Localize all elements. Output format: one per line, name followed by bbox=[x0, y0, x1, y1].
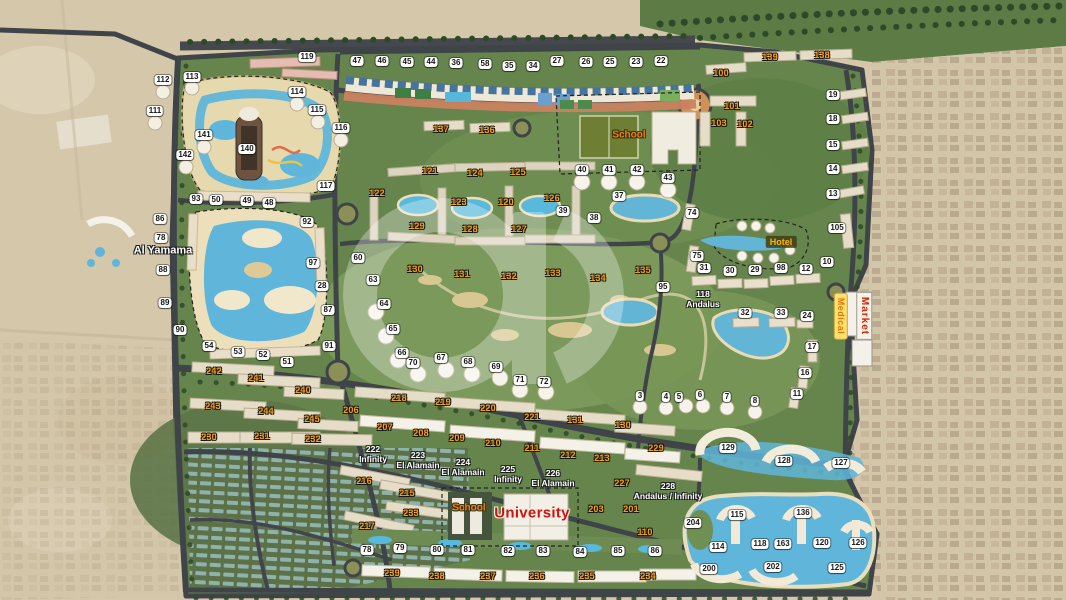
plot-badge-white: 126 bbox=[849, 538, 866, 548]
plot-badge-white: 141 bbox=[195, 130, 212, 140]
plot-badge-orange: 208 bbox=[413, 428, 429, 438]
plot-badge-orange: 206 bbox=[343, 405, 359, 415]
plot-badge-orange: 203 bbox=[588, 504, 604, 514]
plot-badge-white: 51 bbox=[281, 357, 294, 367]
plot-badge-white: 32 bbox=[739, 308, 752, 318]
plot-badge-white: 6 bbox=[696, 390, 704, 400]
plot-badge-orange: 131 bbox=[567, 415, 583, 425]
plot-badge-white: 81 bbox=[462, 545, 475, 555]
plot-badge-orange: 235 bbox=[579, 571, 595, 581]
plot-badge-white: 22 bbox=[655, 56, 668, 66]
plot-badge-white: 31 bbox=[698, 263, 711, 273]
plot-badge-white: 47 bbox=[351, 56, 364, 66]
plot-badge-white: 14 bbox=[827, 164, 840, 174]
plot-badge-white: 75 bbox=[691, 251, 704, 261]
plot-badge-white: 117 bbox=[318, 181, 335, 191]
plot-badge-white: 93 bbox=[190, 194, 203, 204]
plot-badge-orange: 239 bbox=[384, 568, 400, 578]
plot-badge-orange: 129 bbox=[409, 221, 425, 231]
zone-label: 223 El Alamain bbox=[396, 451, 439, 471]
zone-label: Al Yamama bbox=[134, 245, 193, 258]
plot-badge-orange: 216 bbox=[356, 476, 372, 486]
plot-badge-orange: 122 bbox=[369, 188, 385, 198]
plot-badge-white: 24 bbox=[801, 311, 814, 321]
plot-badge-white: 23 bbox=[630, 57, 643, 67]
plot-badge-orange: 124 bbox=[467, 168, 483, 178]
plot-badge-orange: 130 bbox=[407, 264, 423, 274]
plot-badge-white: 70 bbox=[407, 358, 420, 368]
plot-badge-orange: 137 bbox=[433, 124, 449, 134]
plot-badge-white: 115 bbox=[309, 105, 326, 115]
plot-badge-white: 86 bbox=[649, 546, 662, 556]
plot-badge-white: 118 bbox=[752, 539, 769, 549]
plot-badge-orange: 217 bbox=[359, 521, 375, 531]
zone-label: School bbox=[612, 129, 645, 141]
plot-badge-white: 204 bbox=[684, 518, 701, 528]
plot-badge-white: 39 bbox=[557, 206, 570, 216]
plot-badge-orange: 230 bbox=[201, 432, 217, 442]
plot-badge-white: 11 bbox=[791, 389, 803, 399]
plot-badge-white: 140 bbox=[238, 144, 255, 154]
plot-badge-white: 120 bbox=[813, 538, 830, 548]
plot-badge-orange: 123 bbox=[451, 197, 467, 207]
plot-badge-white: 136 bbox=[794, 508, 811, 518]
plot-badge-white: 91 bbox=[323, 341, 336, 351]
plot-badge-orange: 231 bbox=[254, 431, 270, 441]
plot-badge-white: 25 bbox=[604, 57, 617, 67]
plot-badge-white: 90 bbox=[174, 325, 187, 335]
plot-badge-orange: 242 bbox=[206, 366, 222, 376]
plot-badge-white: 16 bbox=[799, 368, 812, 378]
plot-badge-white: 115 bbox=[729, 510, 746, 520]
plot-badge-orange: 103 bbox=[711, 118, 727, 128]
plot-badge-white: 64 bbox=[378, 299, 391, 309]
zone-label: 222 Infinity bbox=[359, 445, 387, 465]
plot-badge-orange: 131 bbox=[454, 269, 470, 279]
plot-badge-white: 97 bbox=[307, 258, 320, 268]
plot-badge-white: 163 bbox=[774, 539, 791, 549]
plot-badge-white: 82 bbox=[502, 546, 515, 556]
plot-badge-orange: 233 bbox=[403, 508, 419, 518]
plot-badge-orange: 218 bbox=[391, 393, 407, 403]
plot-badge-white: 27 bbox=[551, 56, 564, 66]
plot-badge-white: 38 bbox=[588, 213, 601, 223]
plot-badge-white: 10 bbox=[821, 257, 834, 267]
plot-badge-white: 5 bbox=[675, 392, 683, 402]
plot-badge-orange: 125 bbox=[510, 167, 526, 177]
plot-badge-orange: 237 bbox=[480, 571, 496, 581]
plot-badge-orange: 212 bbox=[560, 450, 576, 460]
zone-label: Hotel bbox=[766, 236, 797, 248]
plot-badge-orange: 127 bbox=[511, 224, 527, 234]
plot-badge-white: 113 bbox=[184, 72, 201, 82]
zone-label: 226 El Alamain bbox=[531, 469, 574, 489]
plot-badge-white: 79 bbox=[394, 543, 407, 553]
plot-badge-white: 44 bbox=[425, 57, 438, 67]
plot-badge-white: 54 bbox=[203, 341, 216, 351]
plot-badge-orange: 241 bbox=[248, 373, 264, 383]
plot-badge-orange: 201 bbox=[623, 504, 639, 514]
plot-badge-orange: 213 bbox=[594, 453, 610, 463]
plot-badge-orange: 139 bbox=[762, 52, 778, 62]
plot-badge-white: 50 bbox=[210, 195, 223, 205]
plot-badge-white: 63 bbox=[367, 275, 380, 285]
plot-badge-white: 33 bbox=[775, 308, 788, 318]
plot-badge-white: 142 bbox=[176, 150, 193, 160]
plot-badge-orange: 100 bbox=[713, 68, 729, 78]
plot-badge-white: 41 bbox=[603, 165, 616, 175]
plot-badge-white: 68 bbox=[462, 357, 475, 367]
plot-badge-orange: 126 bbox=[544, 193, 560, 203]
plot-badge-white: 78 bbox=[155, 233, 168, 243]
zone-label: 228 Andalus / Infinity bbox=[634, 482, 702, 502]
plot-badge-white: 3 bbox=[636, 391, 644, 401]
plot-badge-white: 119 bbox=[299, 52, 316, 62]
plot-badge-orange: 101 bbox=[724, 101, 740, 111]
map-markers-layer: 4746454436583534272625232211911211311111… bbox=[0, 0, 1066, 600]
plot-badge-white: 17 bbox=[806, 342, 819, 352]
plot-badge-white: 7 bbox=[723, 392, 731, 402]
plot-badge-white: 13 bbox=[827, 189, 840, 199]
plot-badge-white: 88 bbox=[157, 265, 170, 275]
plot-badge-white: 114 bbox=[710, 542, 727, 552]
plot-badge-white: 80 bbox=[431, 545, 444, 555]
plot-badge-orange: 110 bbox=[637, 527, 652, 537]
plot-badge-white: 15 bbox=[827, 140, 840, 150]
zone-label: 225 Infinity bbox=[494, 465, 522, 485]
plot-badge-orange: 209 bbox=[449, 433, 465, 443]
plot-badge-white: 105 bbox=[828, 223, 845, 233]
plot-badge-orange: 102 bbox=[737, 119, 753, 129]
plot-badge-white: 114 bbox=[289, 87, 306, 97]
plot-badge-white: 52 bbox=[257, 350, 270, 360]
plot-badge-white: 112 bbox=[155, 75, 172, 85]
plot-badge-orange: 133 bbox=[545, 268, 561, 278]
plot-badge-orange: 243 bbox=[205, 401, 221, 411]
plot-badge-white: 74 bbox=[686, 208, 699, 218]
plot-badge-white: 89 bbox=[159, 298, 172, 308]
plot-badge-white: 95 bbox=[657, 282, 670, 292]
plot-badge-white: 67 bbox=[435, 353, 448, 363]
plot-badge-orange: 238 bbox=[429, 571, 445, 581]
plot-badge-white: 43 bbox=[662, 173, 675, 183]
plot-badge-orange: 219 bbox=[435, 397, 451, 407]
plot-badge-white: 36 bbox=[450, 58, 463, 68]
plot-badge-white: 92 bbox=[301, 217, 314, 227]
plot-badge-white: 30 bbox=[724, 266, 737, 276]
plot-badge-white: 128 bbox=[775, 456, 792, 466]
plot-badge-white: 40 bbox=[576, 165, 589, 175]
plot-badge-white: 65 bbox=[387, 324, 400, 334]
plot-badge-white: 29 bbox=[749, 265, 762, 275]
plot-badge-orange: 134 bbox=[590, 273, 606, 283]
plot-badge-white: 85 bbox=[612, 546, 625, 556]
plot-badge-white: 19 bbox=[827, 90, 840, 100]
plot-badge-orange: 132 bbox=[501, 271, 517, 281]
plot-badge-orange: 236 bbox=[529, 571, 545, 581]
plot-badge-white: 28 bbox=[316, 281, 329, 291]
zone-label: Market bbox=[856, 292, 872, 340]
plot-badge-orange: 221 bbox=[524, 412, 540, 422]
plot-badge-white: 45 bbox=[401, 57, 414, 67]
plot-badge-orange: 138 bbox=[814, 50, 830, 60]
plot-badge-white: 111 bbox=[147, 106, 163, 116]
plot-badge-orange: 135 bbox=[635, 265, 651, 275]
plot-badge-white: 129 bbox=[719, 443, 736, 453]
plot-badge-white: 78 bbox=[361, 545, 374, 555]
plot-badge-white: 42 bbox=[631, 165, 644, 175]
plot-badge-white: 58 bbox=[479, 59, 492, 69]
plot-badge-white: 60 bbox=[352, 253, 365, 263]
plot-badge-white: 8 bbox=[751, 396, 759, 406]
plot-badge-white: 48 bbox=[263, 198, 276, 208]
plot-badge-white: 127 bbox=[832, 458, 849, 468]
plot-badge-white: 53 bbox=[232, 347, 245, 357]
plot-badge-white: 34 bbox=[527, 61, 540, 71]
plot-badge-orange: 234 bbox=[640, 571, 656, 581]
plot-badge-orange: 240 bbox=[295, 385, 311, 395]
plot-badge-orange: 220 bbox=[480, 403, 496, 413]
plot-badge-white: 71 bbox=[514, 375, 527, 385]
plot-badge-orange: 136 bbox=[479, 125, 495, 135]
zone-label: 118 Andalus bbox=[686, 290, 720, 310]
plot-badge-white: 86 bbox=[154, 214, 167, 224]
zone-label: 224 El Alamain bbox=[441, 458, 484, 478]
plot-badge-white: 98 bbox=[775, 263, 788, 273]
plot-badge-white: 66 bbox=[396, 348, 409, 358]
plot-badge-orange: 244 bbox=[258, 406, 274, 416]
plot-badge-white: 12 bbox=[800, 264, 813, 274]
plot-badge-orange: 207 bbox=[377, 422, 393, 432]
zone-label: Medical bbox=[834, 293, 848, 340]
plot-badge-white: 37 bbox=[613, 191, 626, 201]
plot-badge-orange: 227 bbox=[614, 478, 630, 488]
plot-badge-orange: 211 bbox=[524, 443, 539, 453]
plot-badge-orange: 215 bbox=[399, 488, 415, 498]
plot-badge-white: 125 bbox=[828, 563, 845, 573]
zone-label: School bbox=[452, 502, 485, 514]
plot-badge-white: 202 bbox=[764, 562, 781, 572]
masterplan-image: 4746454436583534272625232211911211311111… bbox=[0, 0, 1066, 600]
plot-badge-white: 69 bbox=[490, 362, 503, 372]
plot-badge-white: 87 bbox=[322, 305, 335, 315]
plot-badge-orange: 130 bbox=[615, 420, 631, 430]
plot-badge-white: 26 bbox=[580, 57, 593, 67]
plot-badge-white: 72 bbox=[538, 377, 551, 387]
plot-badge-white: 18 bbox=[827, 114, 840, 124]
plot-badge-white: 46 bbox=[376, 56, 389, 66]
zone-label: University bbox=[494, 504, 570, 521]
plot-badge-orange: 245 bbox=[304, 414, 320, 424]
plot-badge-white: 116 bbox=[333, 123, 350, 133]
plot-badge-white: 4 bbox=[662, 392, 670, 402]
plot-badge-white: 84 bbox=[574, 547, 587, 557]
plot-badge-white: 83 bbox=[537, 546, 550, 556]
plot-badge-orange: 128 bbox=[462, 224, 478, 234]
plot-badge-orange: 121 bbox=[422, 166, 438, 176]
plot-badge-orange: 232 bbox=[305, 434, 321, 444]
plot-badge-orange: 229 bbox=[648, 443, 664, 453]
plot-badge-orange: 210 bbox=[485, 438, 501, 448]
plot-badge-white: 35 bbox=[503, 61, 516, 71]
plot-badge-orange: 120 bbox=[498, 197, 514, 207]
plot-badge-white: 49 bbox=[241, 196, 254, 206]
plot-badge-white: 200 bbox=[700, 564, 717, 574]
